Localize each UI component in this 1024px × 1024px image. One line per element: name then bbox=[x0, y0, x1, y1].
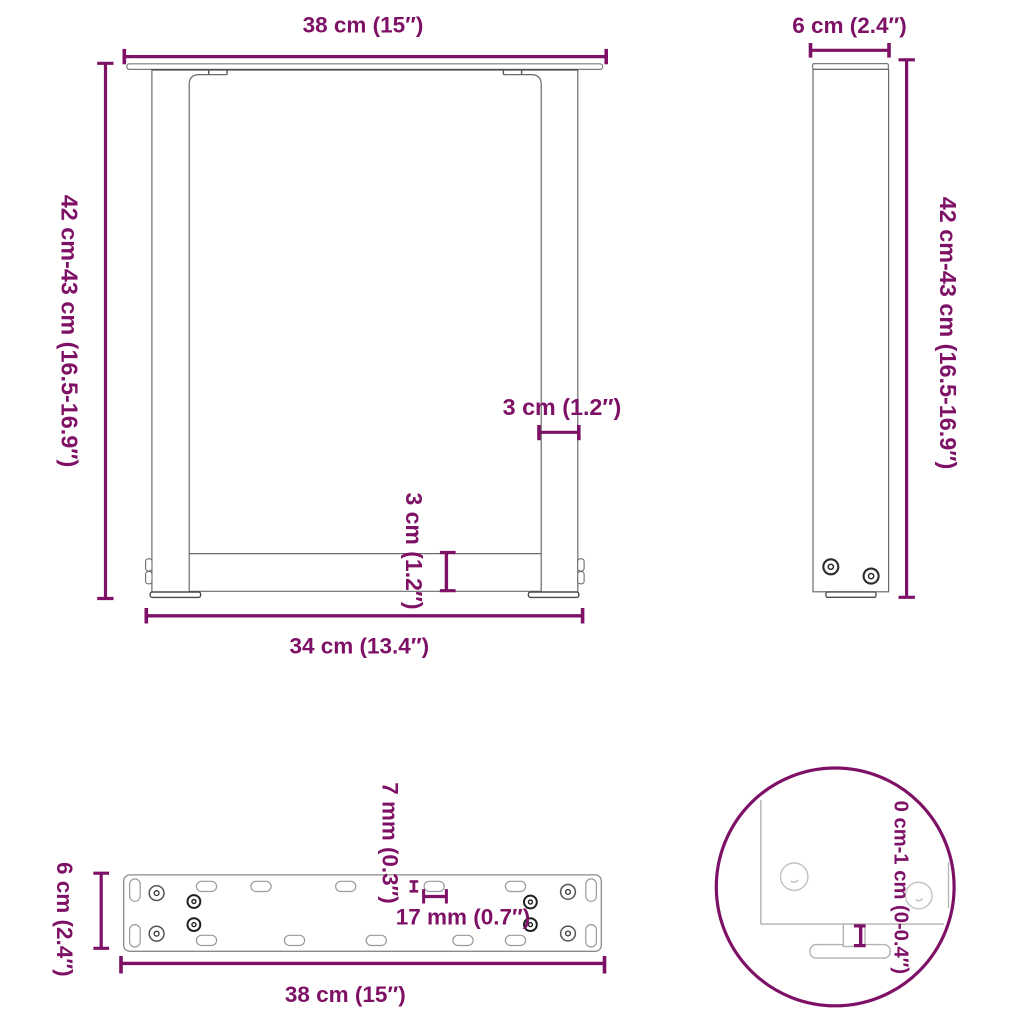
svg-text:38 cm (15″): 38 cm (15″) bbox=[303, 13, 424, 38]
svg-text:3 cm (1.2″): 3 cm (1.2″) bbox=[401, 492, 427, 609]
svg-text:0 cm-1 cm (0-0.4″): 0 cm-1 cm (0-0.4″) bbox=[890, 801, 912, 975]
svg-text:17 mm (0.7″): 17 mm (0.7″) bbox=[396, 905, 531, 930]
svg-text:6 cm (2.4″): 6 cm (2.4″) bbox=[52, 862, 77, 977]
svg-text:42 cm-43 cm (16.5-16.9″): 42 cm-43 cm (16.5-16.9″) bbox=[56, 195, 82, 468]
svg-text:38 cm (15″): 38 cm (15″) bbox=[285, 982, 406, 1007]
svg-text:3 cm (1.2″): 3 cm (1.2″) bbox=[503, 394, 622, 420]
svg-text:42 cm-43 cm (16.5-16.9″): 42 cm-43 cm (16.5-16.9″) bbox=[935, 197, 961, 470]
svg-text:6 cm (2.4″): 6 cm (2.4″) bbox=[792, 13, 907, 38]
svg-text:34 cm (13.4″): 34 cm (13.4″) bbox=[289, 634, 429, 659]
svg-text:7 mm (0.3″): 7 mm (0.3″) bbox=[378, 782, 403, 903]
